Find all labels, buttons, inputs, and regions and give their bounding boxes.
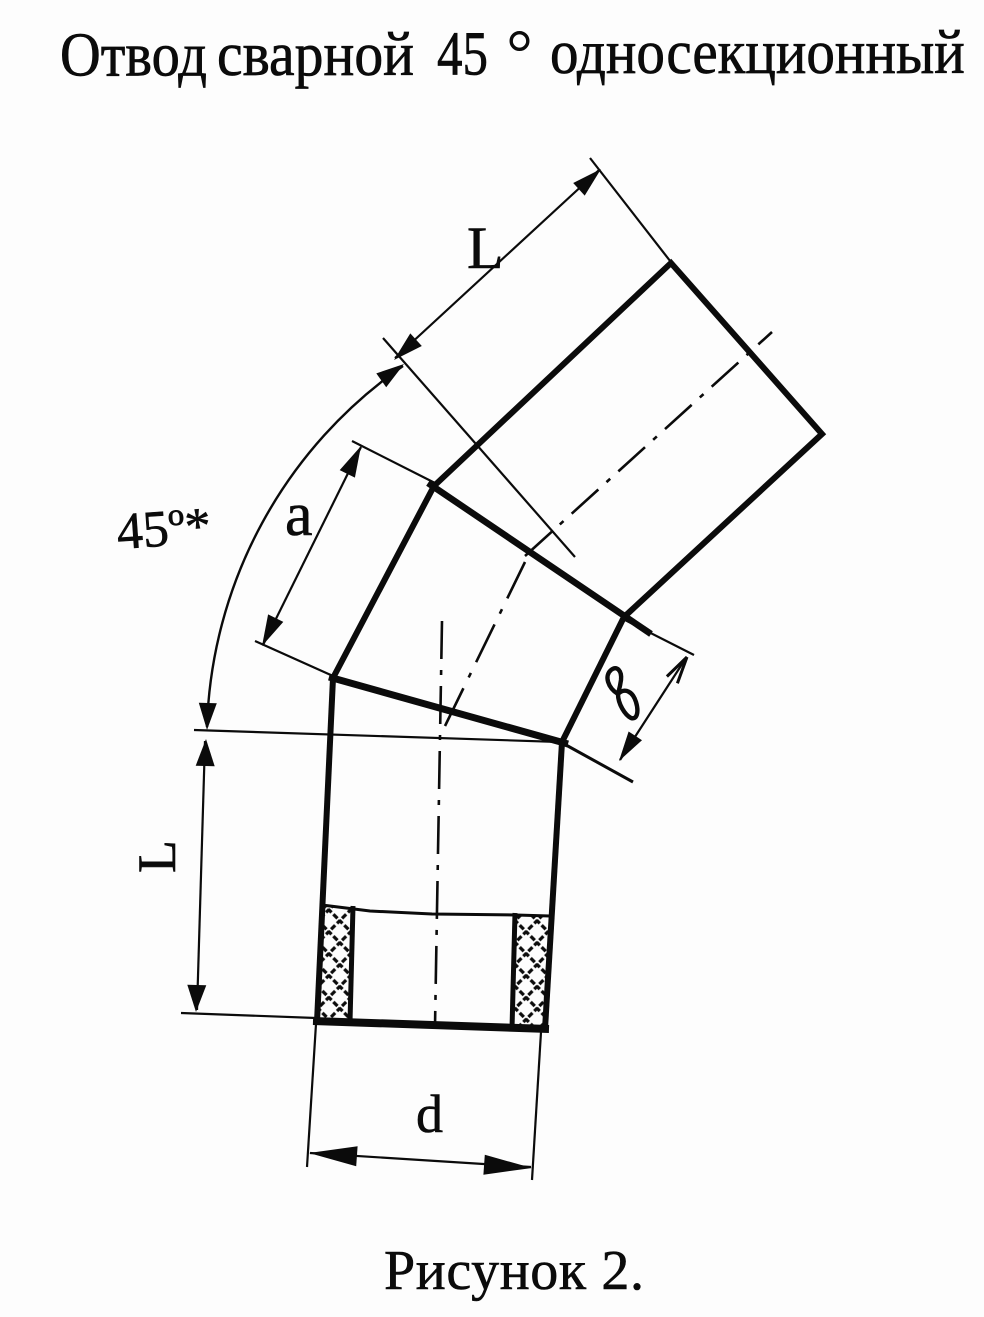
svg-text:45: 45	[437, 20, 488, 89]
svg-text:a: a	[285, 481, 313, 549]
svg-text:Отвод: Отвод	[60, 20, 207, 89]
svg-text:Рисунок 2.: Рисунок 2.	[384, 1240, 644, 1302]
svg-text:сварной: сварной	[217, 20, 414, 88]
svg-text:d: d	[416, 1084, 443, 1144]
svg-text:L: L	[467, 215, 504, 281]
svg-text:45º*: 45º*	[115, 498, 213, 561]
svg-text:L: L	[127, 840, 187, 873]
svg-text:односекционный: односекционный	[550, 18, 965, 87]
